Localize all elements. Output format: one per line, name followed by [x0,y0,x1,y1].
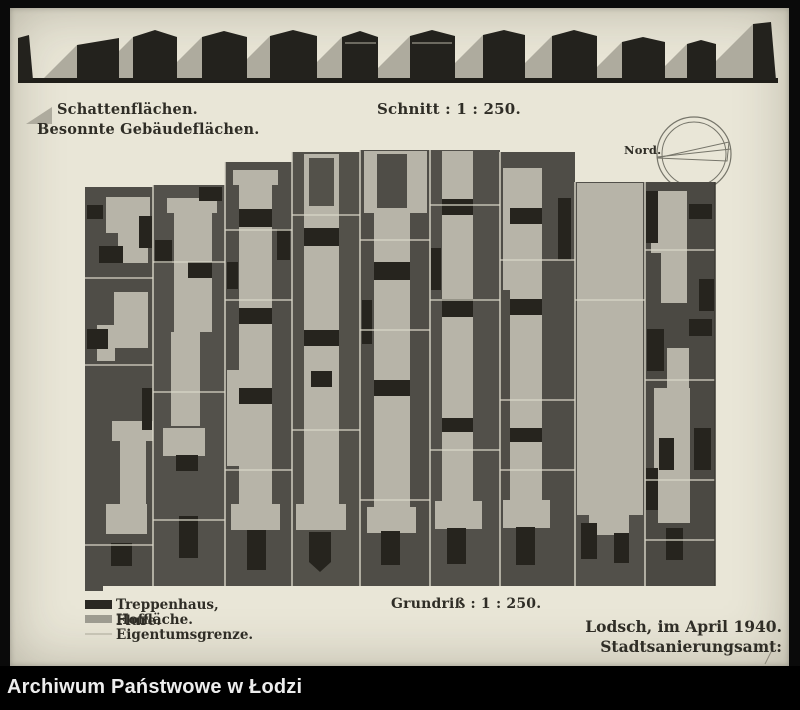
stair-block [646,468,658,510]
courtyard-area [658,503,690,523]
stair-block [431,248,441,290]
legend-courtyard-label: Hoffläche. [116,612,193,628]
courtyard-area [296,504,346,530]
legend-swatch-stairs [85,600,112,609]
stair-block [374,380,410,396]
building-inset [309,158,334,206]
stair-block [666,528,683,560]
courtyard-area [114,292,148,348]
building-silhouette [18,35,33,80]
courtyard-area [435,501,482,529]
north-circle-outer [657,117,731,191]
stair-block [510,299,542,315]
building-inset [377,154,407,208]
footer-office: Stadtsanierungsamt: [585,637,782,657]
legend-sunlit-label: Besonnte Gebäudeflächen. [37,121,260,138]
building-silhouette [687,40,716,80]
stair-block [239,209,272,227]
stair-block [510,208,542,224]
stair-block [155,240,172,263]
stair-block [142,388,152,430]
footer-place-date: Lodsch, im April 1940. [585,617,782,637]
building-silhouette [410,30,455,80]
plan-title: Grundriß : 1 : 250. [391,596,541,612]
stair-block [516,527,535,565]
footer-signature: Lodsch, im April 1940. Stadtsanierungsam… [585,617,782,657]
north-label: Nord. [624,143,661,157]
stair-block [311,371,332,387]
stair-block [694,428,711,470]
building-silhouette [622,37,665,80]
building-silhouette [753,22,776,80]
stair-block [176,455,198,471]
courtyard-area [374,213,410,509]
stair-block [199,187,222,201]
stair-block [87,205,103,219]
stair-block [139,216,152,248]
archive-caption-bar: Archiwum Państwowe w Łodzi [0,666,800,710]
stair-block [689,204,712,219]
courtyard-area [503,500,550,528]
stair-block [111,543,132,566]
stair-block [659,438,674,470]
stair-block [87,329,108,349]
north-circle-inner [662,122,726,186]
building-silhouette [202,31,247,80]
stair-block [362,300,372,344]
building-silhouette [270,30,317,80]
legend-boundary-label: Eigentumsgrenze. [116,627,253,643]
building-silhouette [133,30,177,80]
stair-block [304,330,339,346]
building-silhouette [77,38,119,80]
courtyard-area [367,507,416,533]
archival-photo: Schattenflächen. Besonnte Gebäudeflächen… [0,0,800,710]
stair-block [239,308,272,324]
stair-block [188,262,212,278]
parcel-tab [85,586,103,591]
courtyard-area [231,504,280,530]
courtyard-area [120,423,146,509]
stair-block [99,246,123,263]
stair-block [304,228,339,246]
stair-block [239,388,272,404]
stair-block [227,262,238,289]
stair-block [247,530,266,570]
stair-block [447,528,466,564]
shadow-triangle [42,45,77,80]
stair-block [381,531,400,565]
north-needle [657,142,729,161]
stair-block [277,229,290,260]
stair-block [510,428,542,442]
stair-block [646,191,658,243]
legend-swatch-boundary [85,633,112,635]
stair-block [689,319,712,336]
stair-block [558,198,571,260]
stair-block [647,329,664,371]
stair-block [442,299,473,317]
courtyard-area [577,183,643,515]
section-title: Schnitt : 1 : 250. [377,100,521,118]
building-silhouette [342,31,378,80]
legend-shadow-label: Schattenflächen. [57,101,198,118]
stair-block [179,516,198,558]
legend-swatch-courtyard [85,615,112,623]
building-silhouette [552,30,597,80]
courtyard-area [163,428,205,456]
stair-block [442,199,473,215]
stair-block [699,279,714,311]
courtyard-area [106,504,147,534]
stair-block [442,418,473,432]
building-silhouette [483,30,525,80]
archive-title: Archiwum Państwowe w Łodzi [7,676,302,699]
stair-block [374,262,410,280]
stair-block [581,523,597,559]
stair-block [614,533,629,563]
courtyard-area [227,370,239,466]
courtyard-area [171,332,200,426]
